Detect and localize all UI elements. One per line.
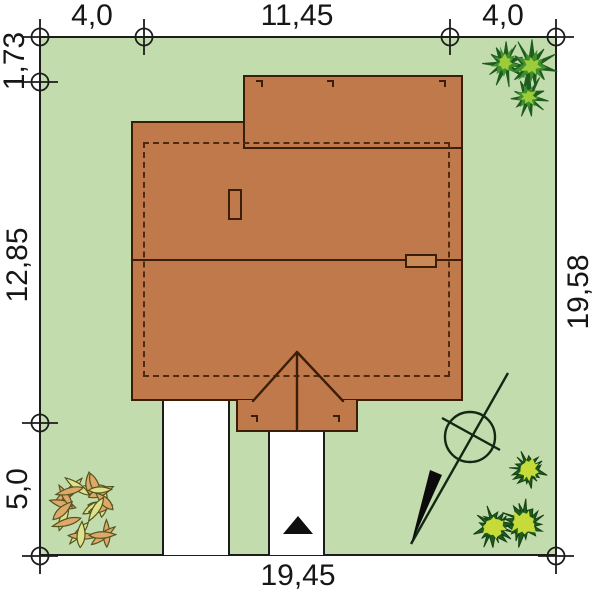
dim-left-lower: 5,0	[1, 468, 35, 510]
dim-top-left: 4,0	[71, 0, 113, 33]
dim-left-upper: 1,73	[0, 32, 32, 90]
dim-bottom: 19,45	[260, 559, 335, 593]
dim-top-right: 4,0	[482, 0, 524, 33]
roof-vent-icon	[439, 80, 446, 87]
roof-vent-icon	[256, 80, 263, 87]
dim-right-side: 19,58	[562, 254, 596, 329]
terrace-path	[162, 398, 230, 555]
dim-left-middle: 12,85	[1, 227, 35, 302]
roof-vent-icon	[333, 415, 340, 422]
entrance-path	[268, 428, 325, 555]
chimney-icon	[405, 254, 437, 268]
chimney-icon	[228, 189, 242, 220]
roof-vent-icon	[251, 415, 258, 422]
roof-wing	[243, 75, 463, 149]
site-plan: 4,0 11,45 4,0 1,73 12,85 5,0 19,58 19,45	[0, 0, 600, 598]
roof-vent-icon	[327, 80, 334, 87]
roof-gable-fill	[253, 396, 343, 403]
dim-top-center: 11,45	[261, 0, 334, 33]
